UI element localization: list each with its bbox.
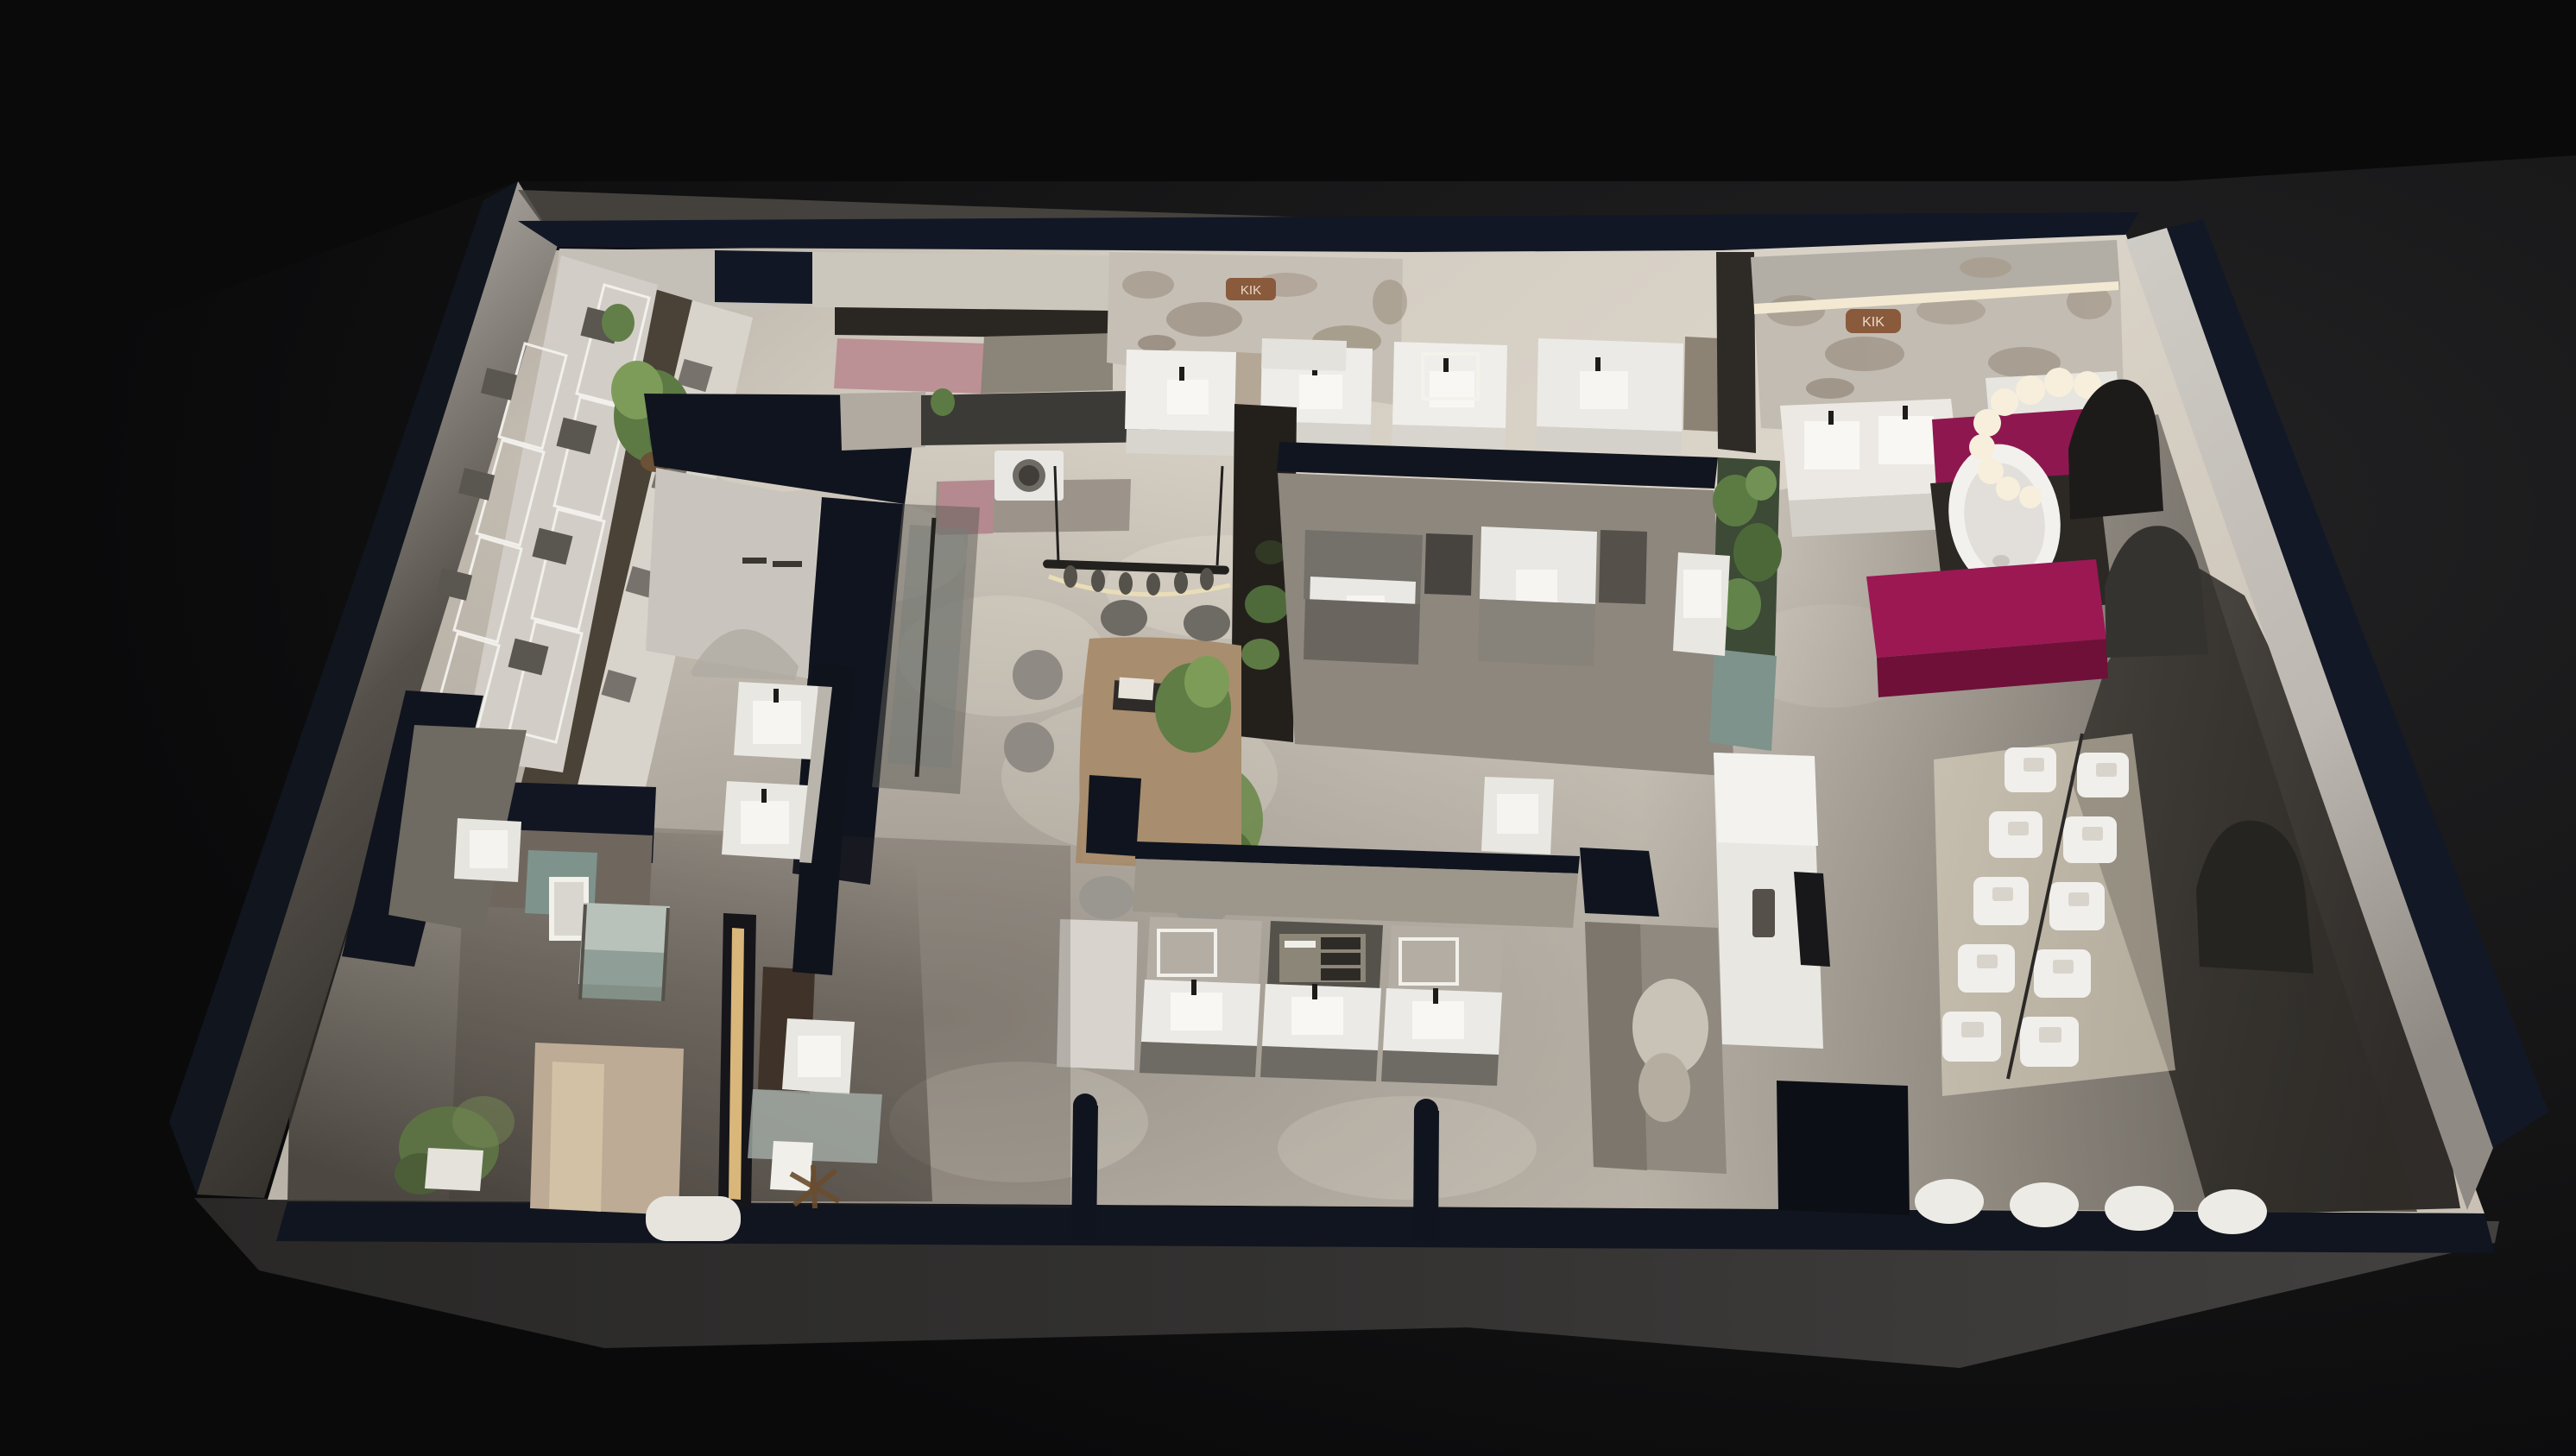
svg-text:KIK: KIK xyxy=(1241,283,1261,298)
svg-text:KIK: KIK xyxy=(1862,315,1885,330)
